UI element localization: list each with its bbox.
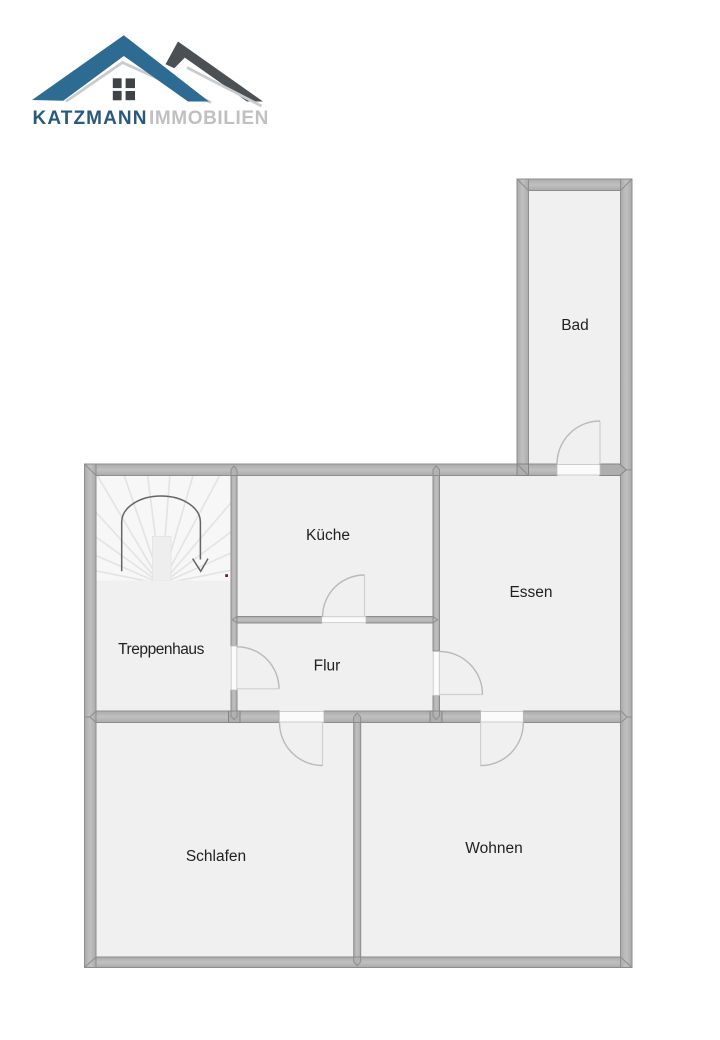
svg-text:KATZMANN: KATZMANN (33, 108, 148, 129)
svg-text:Wohnen: Wohnen (465, 840, 522, 857)
svg-text:Flur: Flur (314, 658, 341, 675)
svg-text:Essen: Essen (509, 584, 552, 601)
svg-text:Schlafen: Schlafen (186, 848, 246, 865)
svg-text:Bad: Bad (561, 317, 589, 334)
svg-text:Treppenhaus: Treppenhaus (118, 641, 205, 658)
svg-text:IMMOBILIEN: IMMOBILIEN (149, 108, 269, 129)
svg-text:Küche: Küche (306, 527, 350, 544)
